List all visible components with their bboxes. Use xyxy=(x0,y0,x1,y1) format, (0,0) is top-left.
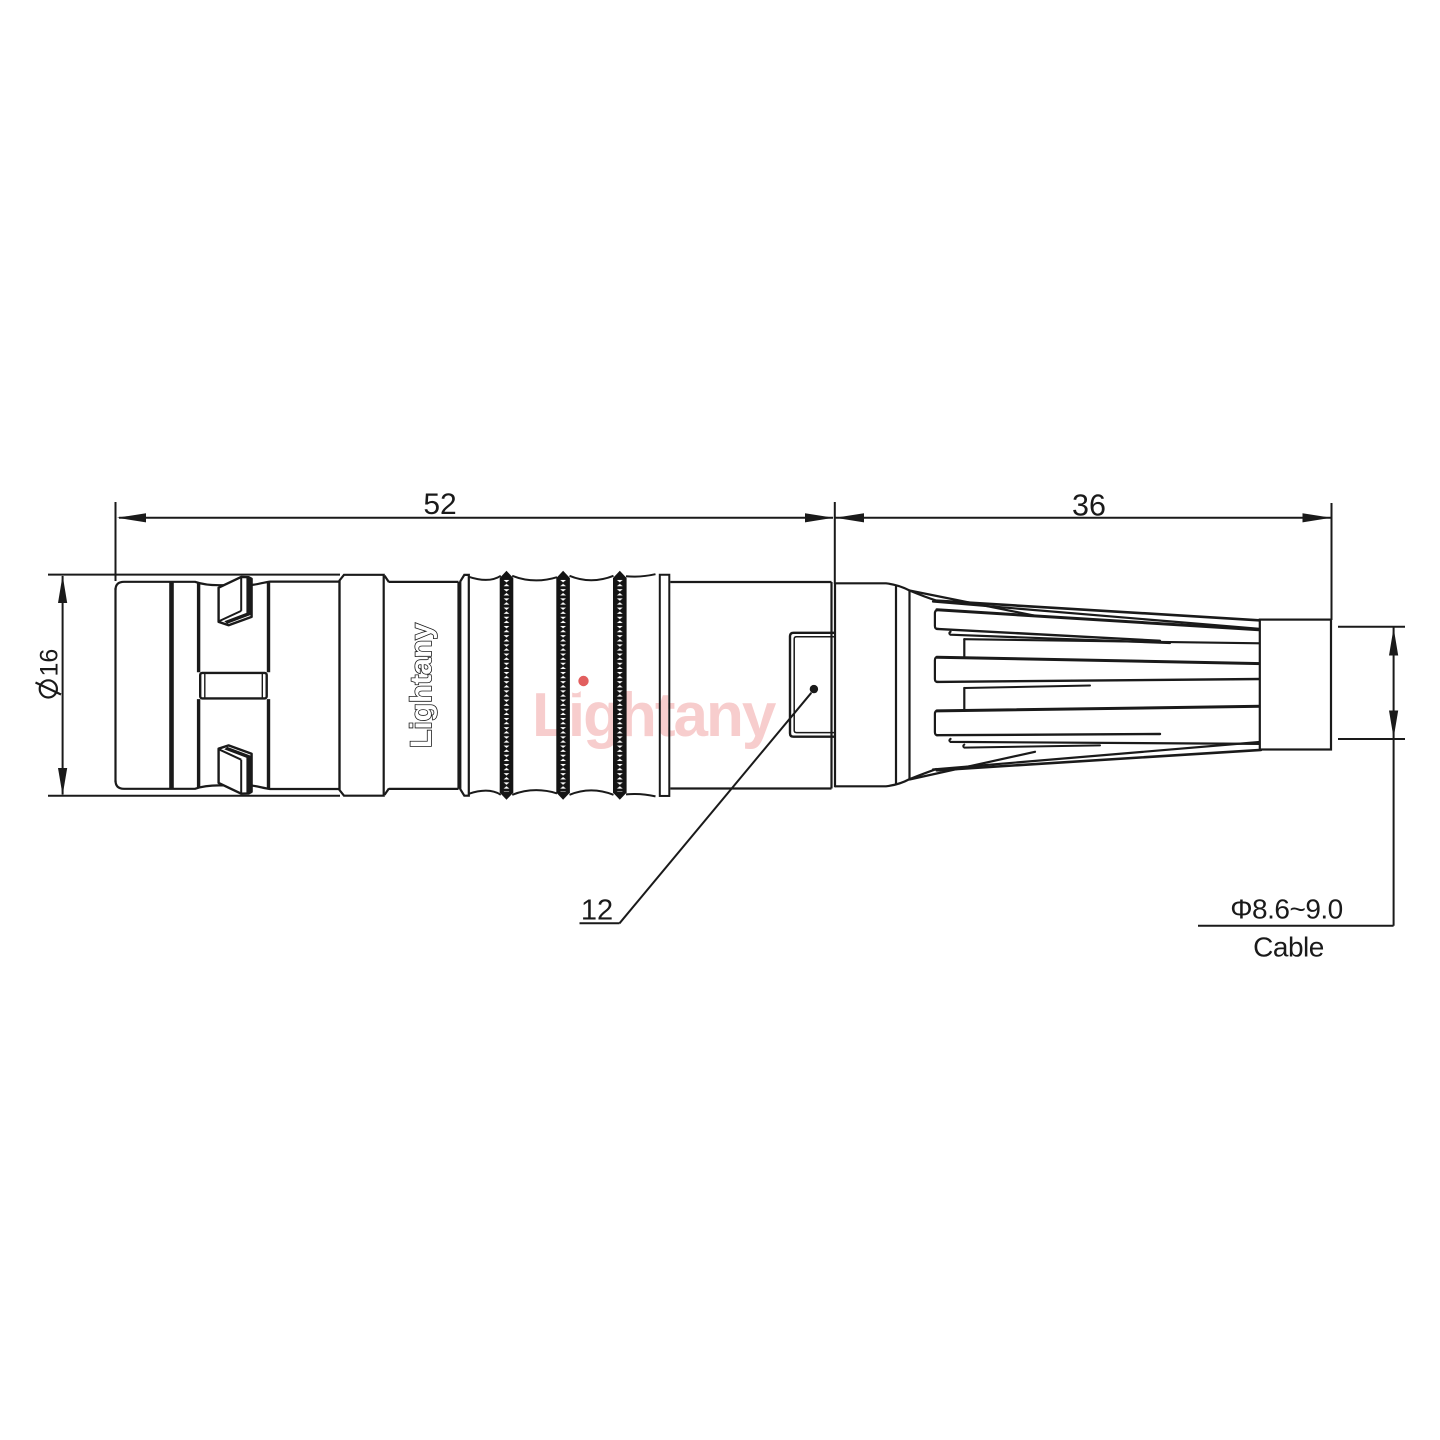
svg-text:Cable: Cable xyxy=(1253,931,1324,962)
svg-text:Φ8.6~9.0: Φ8.6~9.0 xyxy=(1230,894,1343,925)
svg-text:36: 36 xyxy=(1072,489,1106,523)
svg-text:16: 16 xyxy=(35,649,63,677)
svg-text:52: 52 xyxy=(423,488,456,521)
svg-text:12: 12 xyxy=(581,895,613,927)
svg-text:Lightany: Lightany xyxy=(405,623,438,748)
